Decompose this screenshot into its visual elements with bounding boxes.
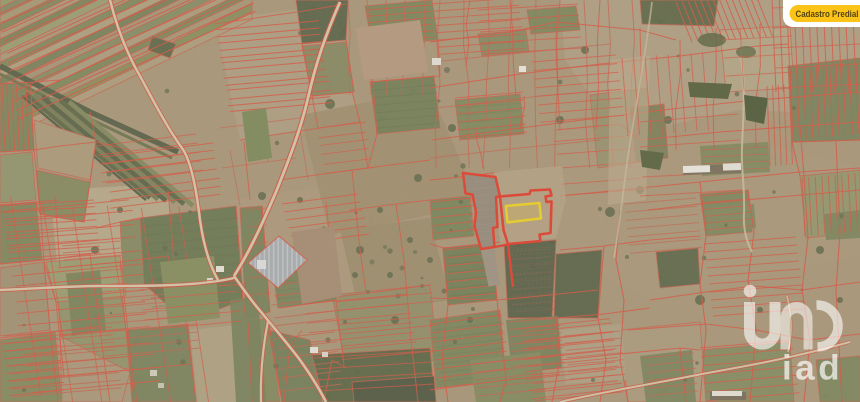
svg-text:iad: iad bbox=[782, 349, 843, 388]
svg-text:Cadastro Predial: Cadastro Predial bbox=[796, 9, 859, 20]
